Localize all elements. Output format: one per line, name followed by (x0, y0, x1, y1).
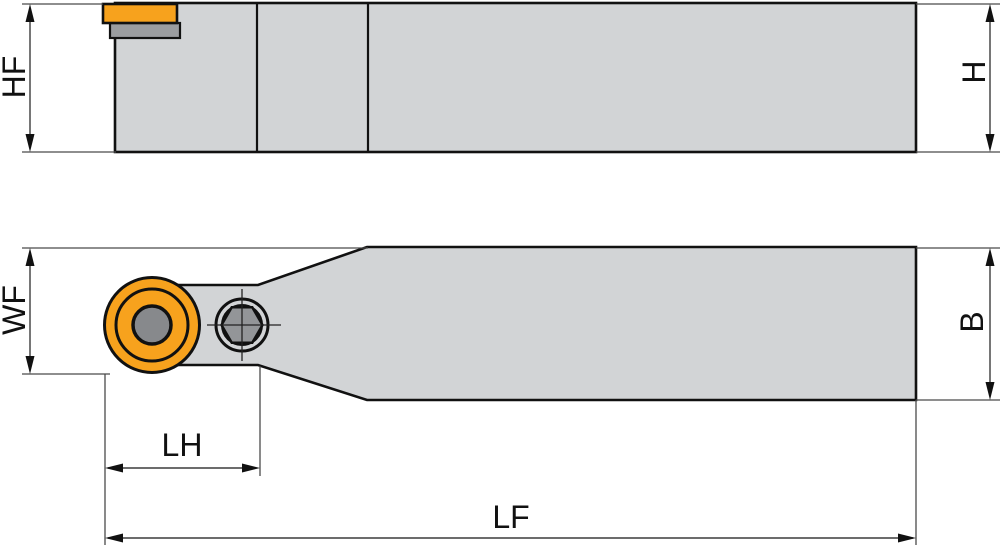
plan-view (105, 247, 917, 400)
dimension-lf: LF (105, 499, 916, 543)
dim-b-arrow-up-icon (986, 248, 995, 266)
dim-hf-arrow-up-icon (26, 4, 35, 22)
dim-lh-arrow-left-icon (105, 464, 123, 473)
dim-lh-arrow-right-icon (242, 464, 260, 473)
dim-h-arrow-up-icon (986, 4, 995, 22)
shim-side-view (110, 23, 180, 38)
dimension-h: H (956, 4, 995, 152)
dim-label-hf: HF (0, 56, 32, 99)
dimension-wf: WF (0, 248, 35, 374)
dim-label-lf: LF (492, 499, 529, 535)
side-view (103, 3, 916, 152)
dim-label-h: H (956, 60, 992, 83)
dim-b-arrow-down-icon (986, 382, 995, 400)
technical-drawing-canvas: HF H WF B LH (0, 0, 1000, 549)
dim-label-b: B (954, 311, 990, 332)
side-view-body (115, 3, 916, 152)
dim-h-arrow-down-icon (986, 134, 995, 152)
dim-hf-arrow-down-icon (26, 134, 35, 152)
insert-bore (133, 306, 171, 344)
dim-label-wf: WF (0, 285, 32, 335)
dim-wf-arrow-down-icon (26, 356, 35, 374)
tool-holder-drawing: HF H WF B LH (0, 0, 1000, 549)
insert-side-view (103, 4, 177, 23)
dimension-hf: HF (0, 4, 35, 152)
dim-lf-arrow-left-icon (105, 534, 123, 543)
dimension-b: B (954, 248, 995, 400)
dim-wf-arrow-up-icon (26, 248, 35, 266)
dim-lf-arrow-right-icon (898, 534, 916, 543)
dim-label-lh: LH (162, 427, 203, 463)
dimension-lh: LH (105, 427, 260, 473)
